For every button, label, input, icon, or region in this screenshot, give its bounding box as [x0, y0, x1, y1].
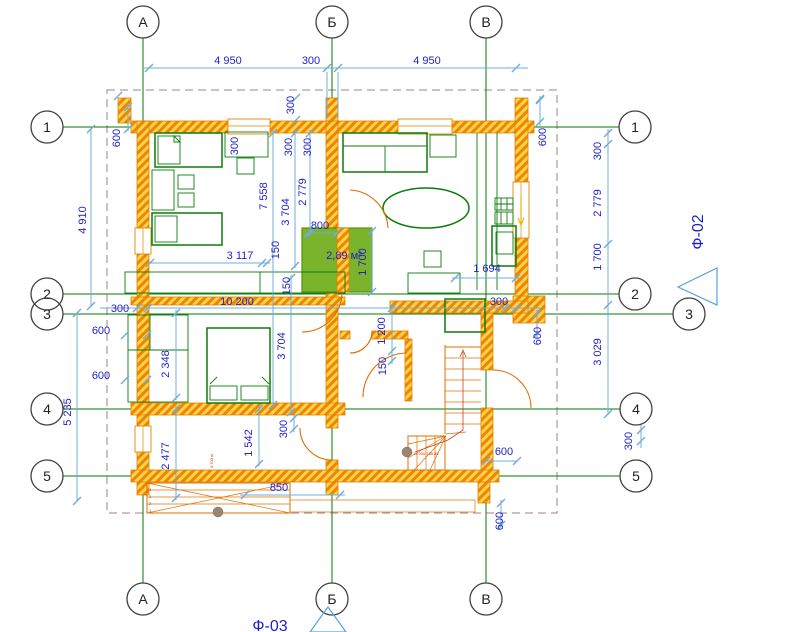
room-area-label: 2,89 м² [326, 250, 362, 262]
dim-label: 1 694 [473, 263, 501, 275]
dresser [152, 170, 174, 210]
dim-label: 600 [494, 512, 506, 530]
dim-label: 2 477 [160, 442, 172, 470]
stove [495, 198, 513, 224]
axis-bubbles: А Б В А Б В 1 2 3 4 5 1 2 3 4 5 [31, 6, 705, 615]
dim-label: 7 558 [258, 182, 270, 210]
step-number: 2 [149, 501, 152, 506]
axis-label: 1 [631, 119, 639, 135]
door-arc [300, 428, 332, 460]
dim-label: 300 [229, 137, 241, 155]
axis-label: 1 [43, 119, 51, 135]
dim-label: 1 200 [376, 317, 388, 345]
door-arc-entry [493, 370, 531, 408]
axis-label: А [138, 591, 148, 607]
axis-label: А [138, 14, 148, 30]
dim-label: 600 [92, 370, 110, 382]
step-number: 4 [149, 487, 152, 492]
bed-single-1 [155, 133, 222, 167]
floor-plan-sheet: 14 000 185 85 4 3 2 1 0,700 м [0, 0, 808, 632]
dim-label: 600 [92, 325, 110, 337]
dim-label: 300 [285, 96, 297, 114]
ramp-note: 0,700 м [209, 454, 214, 468]
dim-label: 4 950 [413, 55, 441, 67]
dim-label: 2 779 [297, 178, 309, 206]
dim-label: 300 [623, 432, 635, 450]
axis-label: 3 [685, 306, 693, 322]
dim-label: 1 542 [243, 429, 255, 457]
dim-label: 300 [592, 142, 604, 160]
floor-plan-drawing: 14 000 185 85 4 3 2 1 0,700 м [0, 0, 808, 632]
cushion [241, 386, 268, 400]
dim-label: 150 [377, 357, 389, 375]
pillow [158, 136, 180, 164]
axis-label: В [481, 14, 490, 30]
axis-label: 5 [632, 468, 640, 484]
desk [408, 273, 460, 293]
dim-label: 600 [532, 327, 544, 345]
nightstand [178, 193, 194, 207]
stair-note: 14 000 185 85 [413, 451, 439, 456]
axis-label: В [481, 591, 490, 607]
dim-label: 10 200 [220, 296, 254, 308]
dim-label: 600 [495, 446, 513, 458]
dim-label: 5 235 [62, 398, 74, 426]
dim-label: 150 [281, 277, 293, 295]
porch-post [213, 507, 223, 517]
dim-label: 300 [283, 138, 295, 156]
dim-label: 1 700 [592, 243, 604, 271]
door-arc [350, 331, 372, 353]
dim-label: 3 029 [592, 338, 604, 366]
dim-label: 300 [302, 55, 320, 67]
dim-label: 850 [270, 482, 288, 494]
dim-label: 150 [270, 241, 282, 259]
section-marker-f03-label: Ф-03 [252, 618, 287, 632]
chair [424, 251, 441, 267]
axis-label: Б [327, 591, 336, 607]
stool [237, 158, 254, 174]
cushion [210, 386, 237, 400]
bed-double [207, 328, 270, 403]
dim-label: 600 [111, 129, 123, 147]
dim-label: 2 348 [160, 350, 172, 378]
axis-label: 5 [43, 468, 51, 484]
pillow [155, 216, 177, 242]
dim-label: 3 704 [280, 198, 292, 226]
dim-label: 3 704 [276, 332, 288, 360]
staircase: 14 000 185 85 [402, 345, 481, 470]
dim-label: 300 [111, 303, 129, 315]
axis-label: 2 [43, 286, 51, 302]
dim-label: 300 [490, 296, 508, 308]
bed-single-2 [152, 213, 222, 245]
nightstand [178, 175, 194, 189]
dim-label: 600 [537, 128, 549, 146]
grid-axes [63, 38, 673, 583]
dim-label: 4 950 [214, 55, 242, 67]
dim-label: 300 [278, 420, 290, 438]
newel-post [402, 447, 412, 457]
step-number: 3 [149, 494, 152, 499]
dim-label: 4 910 [77, 206, 89, 234]
dim-label: 300 [302, 138, 314, 156]
dim-label: 800 [311, 220, 329, 232]
door-arc [350, 190, 388, 228]
axis-label: 3 [43, 306, 51, 322]
axis-label: 4 [43, 401, 51, 417]
oval-table [383, 188, 469, 228]
cabinet [430, 135, 456, 157]
dim-label: 2 779 [592, 189, 604, 217]
axis-label: 2 [631, 286, 639, 302]
axis-label: 4 [632, 401, 640, 417]
dim-label: 3 117 [227, 250, 254, 262]
axis-label: Б [327, 14, 336, 30]
section-marker-f02-label: Ф-02 [690, 214, 707, 249]
